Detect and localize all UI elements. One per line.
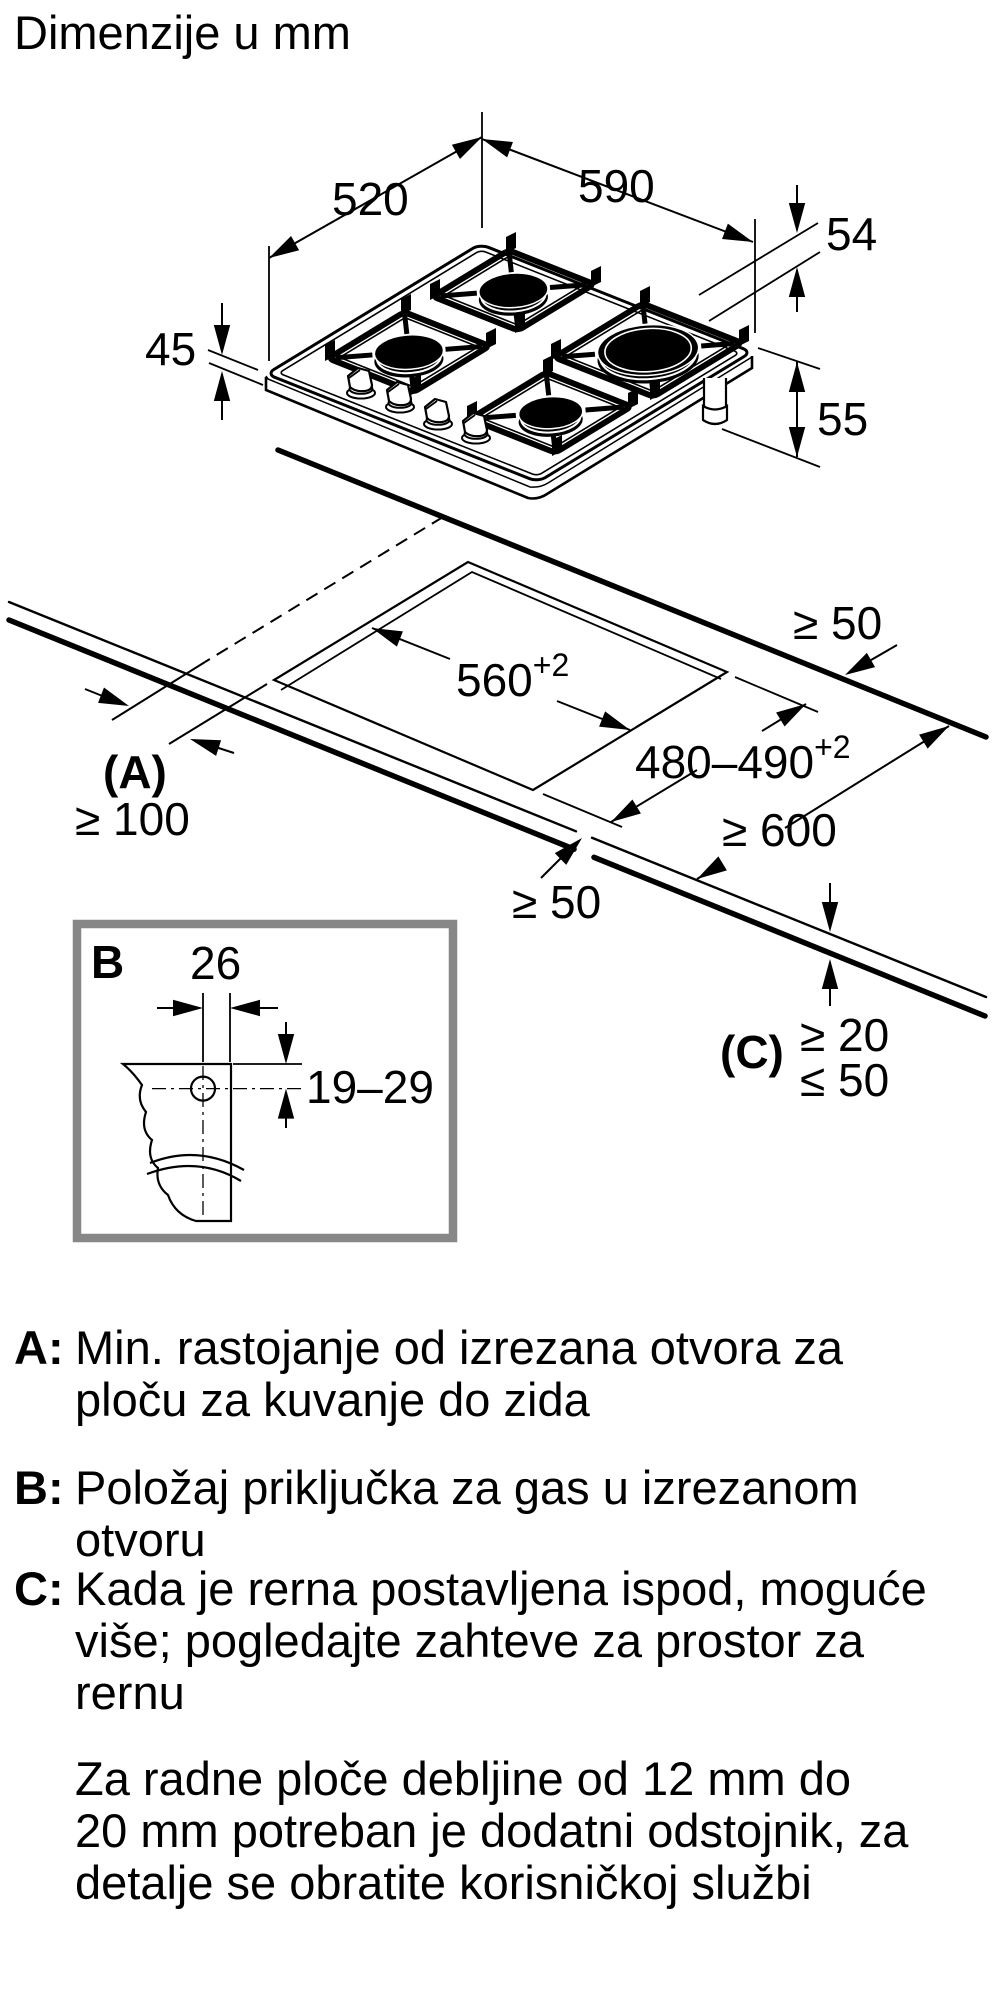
svg-text:≥ 600: ≥ 600 (722, 804, 837, 856)
svg-text:55: 55 (817, 393, 868, 445)
svg-text:≥ 50: ≥ 50 (793, 597, 882, 649)
svg-text:Za radne ploče debljine od 12: Za radne ploče debljine od 12 mm do (75, 1752, 851, 1805)
svg-text:480–490+2: 480–490+2 (635, 729, 851, 788)
svg-text:≥ 100: ≥ 100 (75, 793, 190, 845)
svg-text:20 mm potreban je dodatni odst: 20 mm potreban je dodatni odstojnik, za (75, 1804, 909, 1857)
svg-text:19–29: 19–29 (306, 1061, 434, 1113)
svg-text:≥ 50: ≥ 50 (512, 876, 601, 928)
svg-text:(C): (C) (720, 1026, 784, 1078)
svg-text:590: 590 (578, 160, 655, 212)
svg-text:A:: A: (14, 1321, 64, 1374)
svg-text:detalje se obratite korisničko: detalje se obratite korisničkoj službi (75, 1856, 812, 1909)
svg-text:26: 26 (190, 937, 241, 989)
svg-text:otvoru: otvoru (75, 1513, 206, 1566)
svg-text:(A): (A) (103, 746, 167, 798)
svg-text:Kada je rerna postavljena ispo: Kada je rerna postavljena ispod, moguće (75, 1562, 927, 1615)
svg-text:54: 54 (826, 208, 877, 260)
svg-text:Dimenzije u mm: Dimenzije u mm (14, 6, 351, 59)
svg-text:ploču za kuvanje do zida: ploču za kuvanje do zida (75, 1373, 591, 1426)
svg-text:više; pogledajte zahteve za pr: više; pogledajte zahteve za prostor za (75, 1614, 865, 1667)
svg-text:C:: C: (14, 1562, 64, 1615)
svg-text:rernu: rernu (75, 1666, 185, 1719)
svg-text:B: B (91, 936, 124, 988)
svg-text:Položaj priključka za gas u iz: Položaj priključka za gas u izrezanom (75, 1461, 859, 1514)
svg-text:520: 520 (332, 173, 409, 225)
svg-text:B:: B: (14, 1461, 64, 1514)
svg-text:45: 45 (145, 323, 196, 375)
svg-text:Min. rastojanje od izrezana ot: Min. rastojanje od izrezana otvora za (75, 1321, 844, 1374)
svg-text:≤ 50: ≤ 50 (800, 1054, 889, 1106)
